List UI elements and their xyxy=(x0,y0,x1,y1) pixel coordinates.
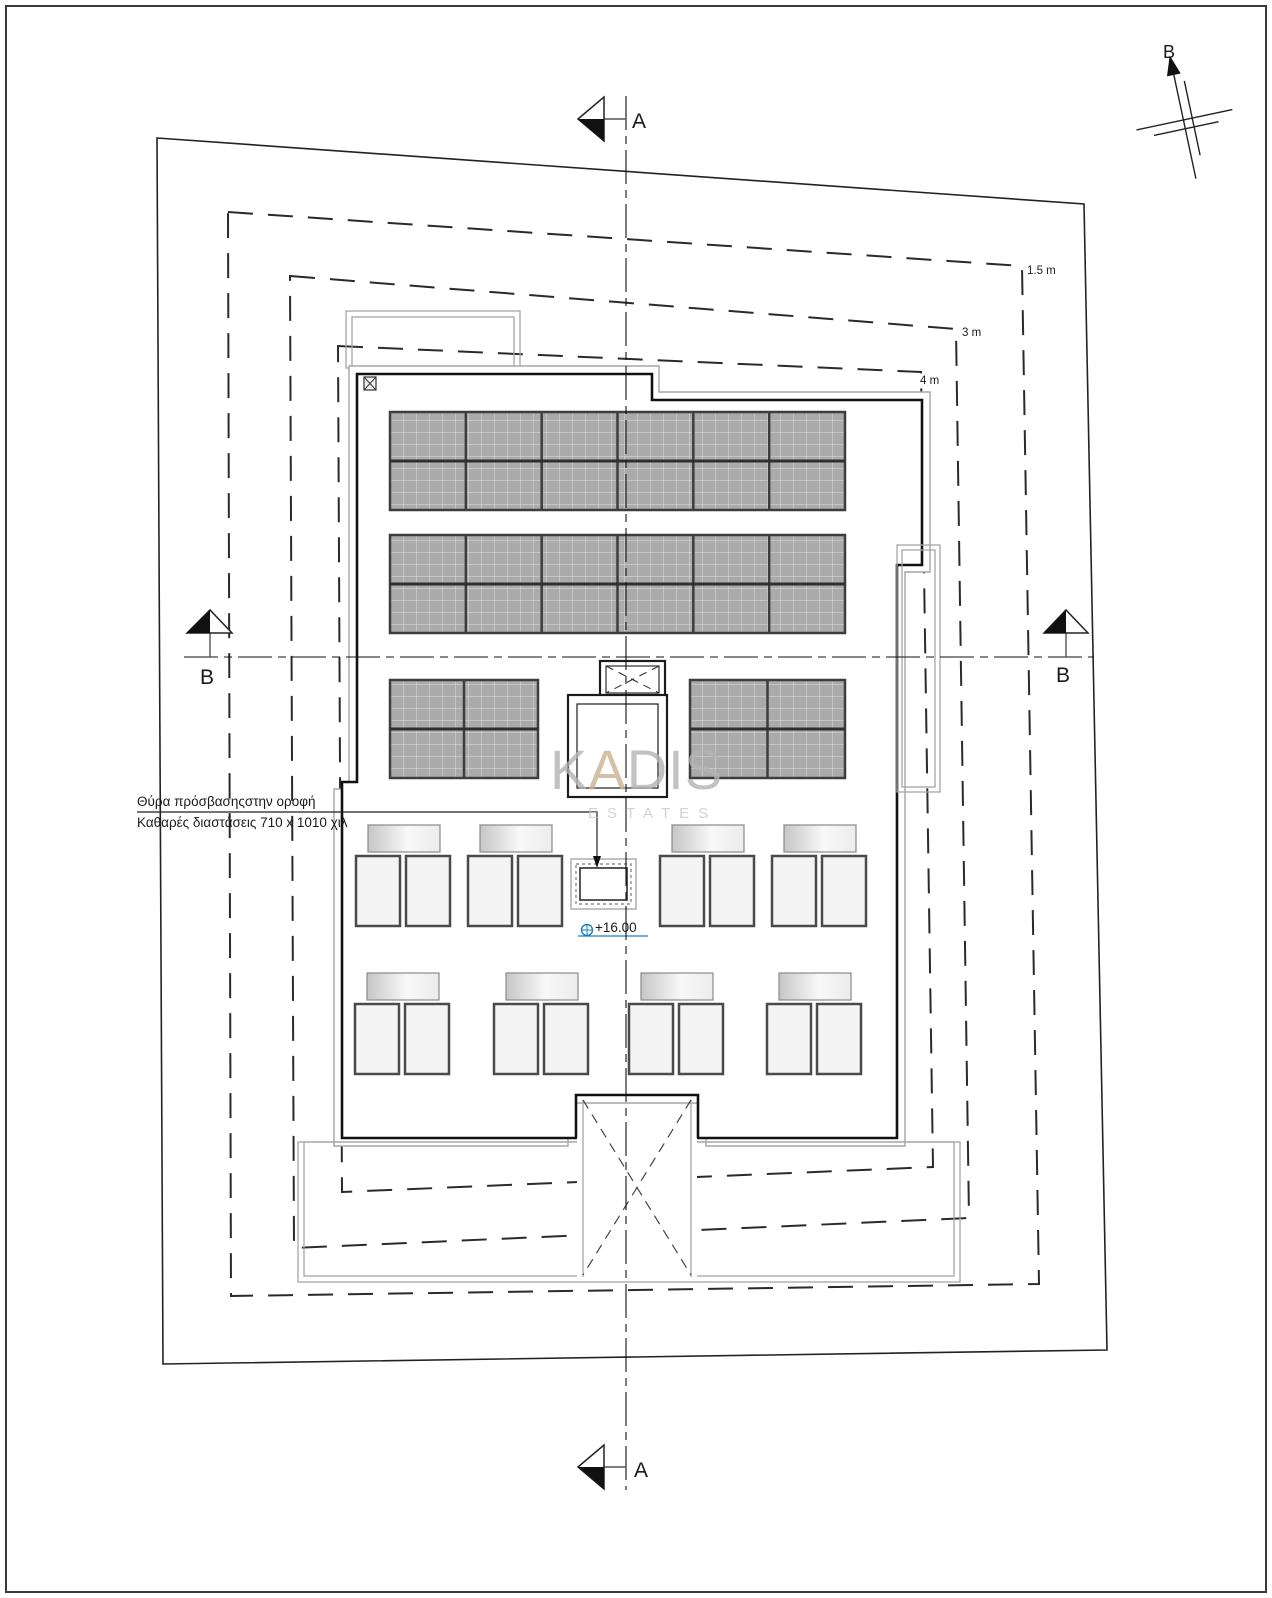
solar-array xyxy=(390,680,538,778)
compass-north-label: B xyxy=(1163,42,1175,62)
section-label-a-bottom: A xyxy=(634,1459,648,1482)
elevation-label: +16.00 xyxy=(595,920,637,935)
roof-plan-drawing: +16.00 A A B xyxy=(0,0,1272,1598)
section-label-a-top: A xyxy=(632,110,646,133)
drain-symbol xyxy=(364,377,376,390)
annotation-line1: Θύρα πρόσβασηςστην οροφή xyxy=(137,794,316,809)
solar-array xyxy=(390,412,845,510)
setback-label-middle: 3 m xyxy=(962,327,981,339)
annotation-line2: Καθαρές διαστάσεις 710 x 1010 χιλ xyxy=(137,815,348,830)
solar-array xyxy=(390,535,845,633)
elevator-skylight xyxy=(600,661,665,698)
setback-label-outer: 1.5 m xyxy=(1027,265,1056,277)
section-label-b-left: B xyxy=(200,666,214,689)
setback-label-inner: 4 m xyxy=(920,375,939,387)
roof-plan-sheet: +16.00 A A B xyxy=(0,0,1272,1598)
stair-core xyxy=(568,695,667,797)
solar-array xyxy=(690,680,845,778)
section-label-b-right: B xyxy=(1056,664,1070,687)
